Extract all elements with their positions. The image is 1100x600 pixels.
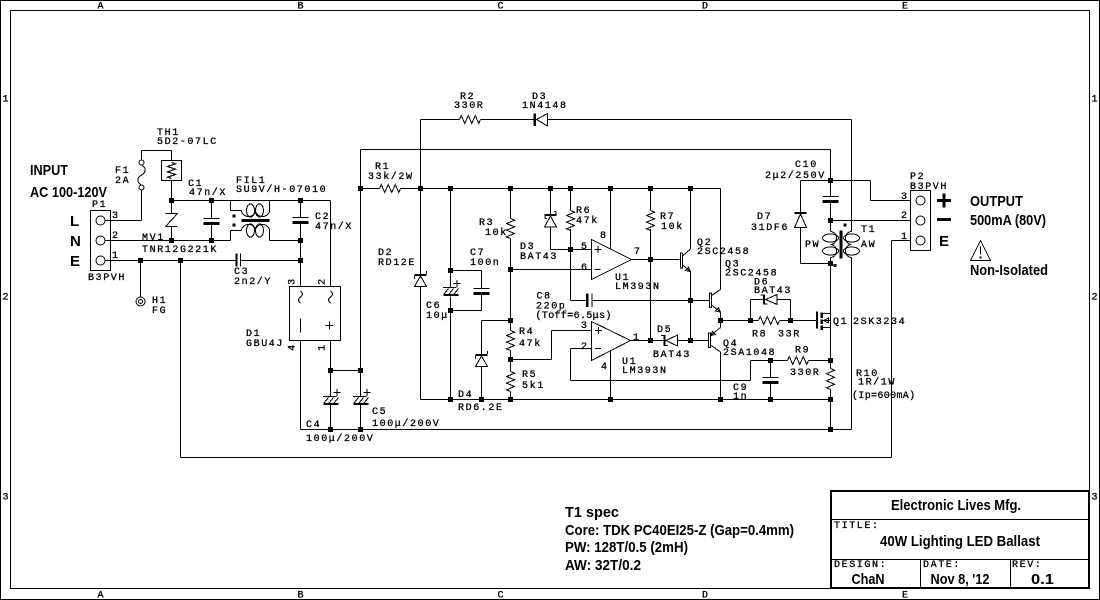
svg-text:33R: 33R [778,330,801,341]
svg-text:330R: 330R [790,368,820,379]
svg-text:2SC2458: 2SC2458 [725,269,778,280]
svg-text:1: 1 [112,251,120,262]
svg-text:D: D [702,2,710,13]
svg-text:6: 6 [581,263,589,274]
svg-text:REV:: REV: [1012,560,1042,571]
svg-text:3: 3 [112,211,120,222]
svg-text:500mA (80V): 500mA (80V) [970,212,1046,229]
svg-text:D4: D4 [458,390,473,401]
svg-text:3: 3 [901,192,909,203]
svg-text:100n: 100n [470,258,500,269]
svg-text:A: A [98,591,106,600]
svg-text:3: 3 [3,493,11,504]
svg-text:8: 8 [600,231,608,242]
svg-text:A: A [98,2,106,13]
svg-text:OUTPUT: OUTPUT [970,193,1023,210]
svg-text:330R: 330R [454,101,484,112]
svg-text:D: D [702,591,710,600]
svg-text:5k1: 5k1 [522,380,545,392]
svg-text:P1: P1 [92,200,107,211]
svg-text:INPUT: INPUT [30,162,68,179]
svg-text:1n: 1n [733,392,748,403]
svg-text:DATE:: DATE: [923,560,961,571]
svg-text:Non-Isolated: Non-Isolated [970,262,1048,279]
svg-text:B3PVH: B3PVH [88,273,126,284]
svg-text:BAT43: BAT43 [754,286,792,297]
svg-text:Electronic Lives Mfg.: Electronic Lives Mfg. [891,497,1021,514]
svg-text:E: E [70,253,80,270]
svg-text:LM393N: LM393N [615,282,661,293]
svg-text:100μ/200V: 100μ/200V [372,418,440,430]
svg-text:E: E [902,591,910,600]
svg-text:FG: FG [152,306,167,317]
svg-text:BAT43: BAT43 [653,350,691,361]
svg-text:LM393N: LM393N [622,366,668,377]
svg-text:DESIGN:: DESIGN: [834,560,887,571]
svg-text:2SC2458: 2SC2458 [697,247,750,258]
svg-text:2: 2 [581,342,589,353]
svg-text:7: 7 [634,247,642,258]
svg-text:47k: 47k [519,338,542,350]
svg-text:E: E [902,2,910,13]
svg-text:2SA1048: 2SA1048 [723,348,776,359]
svg-text:3: 3 [288,277,299,285]
svg-text:E: E [939,233,949,250]
svg-text:Core: TDK PC40EI25-Z (Gap=0.4m: Core: TDK PC40EI25-Z (Gap=0.4mm) [565,522,794,539]
svg-text:0.1: 0.1 [1031,571,1054,588]
svg-text:SU9V/H-07010: SU9V/H-07010 [236,184,327,196]
svg-text:1: 1 [901,232,909,243]
svg-text:T1 spec: T1 spec [565,504,619,521]
svg-text:5D2-07LC: 5D2-07LC [157,137,218,148]
svg-text:1: 1 [3,95,11,106]
svg-text:RD12E: RD12E [378,258,416,269]
svg-text:GBU4J: GBU4J [246,339,284,350]
svg-text:PW: 128T/0.5 (2mH): PW: 128T/0.5 (2mH) [565,539,688,556]
svg-text:TNR12G221K: TNR12G221K [142,245,218,256]
svg-text:40W Lighting LED Ballast: 40W Lighting LED Ballast [880,533,1040,550]
svg-text:3: 3 [581,321,589,332]
svg-text:2A: 2A [115,176,130,187]
svg-text:47k: 47k [576,215,599,227]
svg-text:1: 1 [1092,95,1100,106]
svg-text:2: 2 [112,231,120,242]
svg-text:2μ2/250V: 2μ2/250V [765,170,826,182]
svg-text:5: 5 [581,242,589,253]
svg-text:R9: R9 [795,346,810,357]
svg-text:2n2/Y: 2n2/Y [234,276,272,288]
svg-text:10μ: 10μ [426,311,449,322]
svg-text:Nov 8, '12: Nov 8, '12 [931,571,990,588]
svg-text:RD6.2E: RD6.2E [458,403,504,414]
svg-text:L: L [70,213,79,230]
svg-text:AW: AW [861,240,876,251]
svg-text:(Toff=6.5μs): (Toff=6.5μs) [536,310,612,322]
svg-text:B: B [298,2,306,13]
svg-text:C10: C10 [795,160,818,171]
svg-text:47n/X: 47n/X [315,221,353,233]
svg-text:4: 4 [601,362,609,373]
svg-text:D7: D7 [757,212,772,223]
svg-text:1: 1 [633,333,641,344]
svg-text:C: C [498,2,506,13]
svg-text:Q1: Q1 [833,317,848,328]
svg-text:2: 2 [3,293,11,304]
svg-text:PW: PW [805,240,820,251]
svg-text:R5: R5 [522,370,537,381]
svg-text:B: B [298,591,306,600]
svg-text:AC 100-120V: AC 100-120V [30,184,107,201]
svg-text:B3PVH: B3PVH [910,182,948,193]
svg-text:2: 2 [1092,293,1100,304]
svg-text:TITLE:: TITLE: [834,521,880,532]
svg-text:10k: 10k [661,221,684,233]
svg-text:MV1: MV1 [142,233,165,244]
svg-text:R8: R8 [752,330,767,341]
svg-text:100μ/200V: 100μ/200V [306,433,374,445]
svg-text:47n/X: 47n/X [189,187,227,199]
svg-text:(Ip=600mA): (Ip=600mA) [852,390,916,402]
svg-text:D5: D5 [657,325,672,336]
svg-text:2: 2 [901,211,909,222]
svg-text:BAT43: BAT43 [520,252,558,263]
svg-text:T1: T1 [861,225,876,236]
svg-text:R4: R4 [519,327,534,338]
svg-text:33k/2W: 33k/2W [368,171,414,183]
svg-text:2: 2 [318,277,329,285]
svg-text:1: 1 [318,343,329,351]
svg-text:2SK3234: 2SK3234 [853,317,906,328]
svg-text:4: 4 [288,343,299,351]
svg-text:C5: C5 [372,407,387,418]
svg-text:1N4148: 1N4148 [522,101,568,112]
svg-text:C: C [498,591,506,600]
svg-text:AW: 32T/0.2: AW: 32T/0.2 [565,557,641,574]
svg-text:ChaN: ChaN [852,571,885,588]
svg-text:1R/1W: 1R/1W [858,377,896,389]
svg-text:C4: C4 [306,420,321,431]
svg-text:3: 3 [1092,493,1100,504]
svg-text:31DF6: 31DF6 [751,223,789,234]
svg-text:10k: 10k [485,227,508,239]
svg-text:N: N [70,233,81,250]
